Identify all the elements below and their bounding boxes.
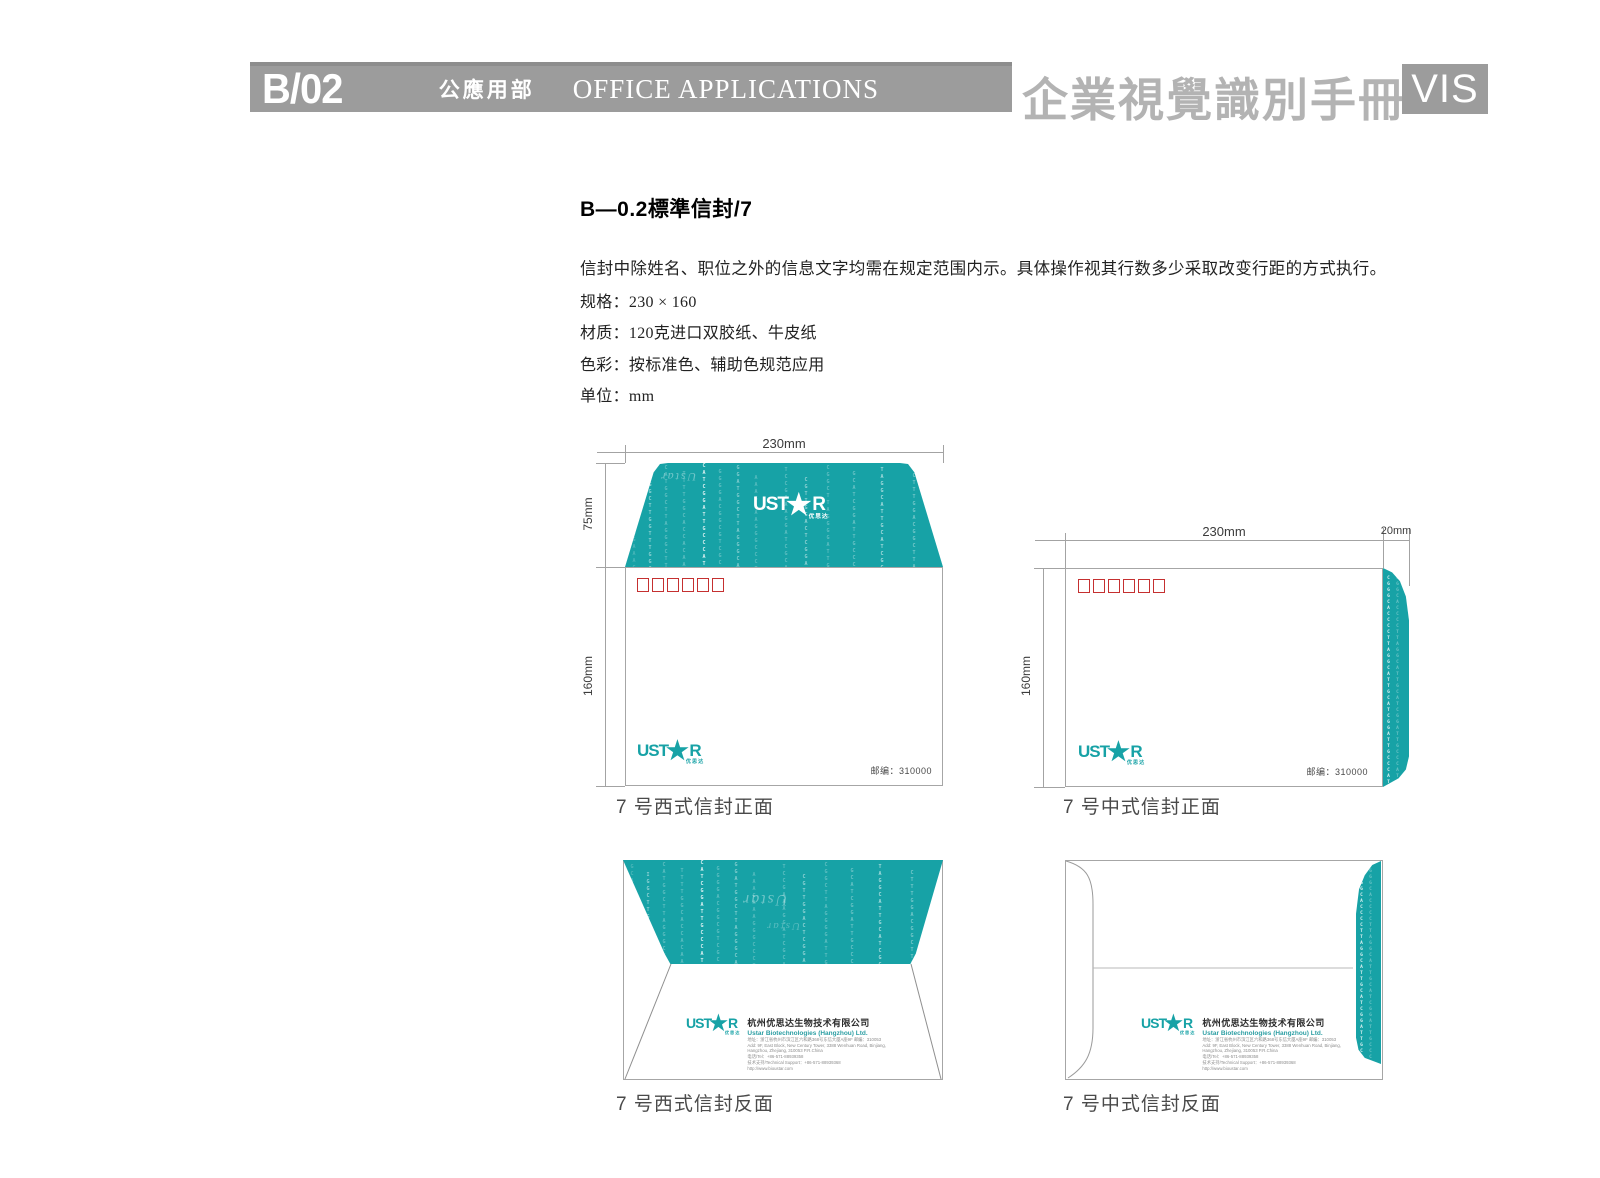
watermark: Ustar	[659, 469, 696, 484]
dimension-line	[1035, 540, 1409, 541]
dim-height-label: 160mm	[581, 646, 595, 706]
postcode-boxes	[1078, 579, 1165, 593]
star-icon: ★	[1107, 743, 1129, 761]
envelope-flap: GCACACCAAAGAAAGGGCCCIGGCTTGGTTTGGCAGCGGC…	[625, 463, 943, 567]
ustar-logo: UST ★ R 优思达	[686, 1016, 740, 1035]
postcode-label: 邮编：310000	[1306, 765, 1368, 778]
envelope-side-flap-back: CGGGCACCCCTTAGGCATTGCATCGGATTGCCCATGCCAT…	[1356, 861, 1381, 1064]
section-code: B/02	[262, 65, 342, 113]
dimension-tick	[596, 463, 625, 464]
company-block: UST ★ R 优思达 杭州优思达生物技术有限公司 Ustar Biotechn…	[686, 1016, 886, 1071]
star-icon: ★	[786, 495, 811, 516]
dimension-tick	[596, 786, 625, 787]
spec-color: 色彩：按标准色、辅助色规范应用	[580, 351, 825, 375]
page-title: B—0.2標準信封/7	[580, 193, 752, 223]
spec-size: 规格：230 × 160	[580, 288, 697, 312]
dimension-tick	[625, 445, 626, 463]
dim-width-label: 230mm	[754, 436, 814, 451]
caption-west-back: 7 号西式信封反面	[616, 1089, 774, 1116]
company-name-en: Ustar Biotechnologies (Hangzhou) Ltd.	[747, 1030, 886, 1037]
ustar-logo: UST ★ R 优思达	[637, 742, 704, 765]
envelope-front-west: UST ★ R 优思达 邮编：310000	[625, 567, 943, 786]
ustar-logo: UST ★ R 优思达	[1141, 1016, 1195, 1035]
dimension-tick	[1034, 787, 1065, 788]
company-name-cn: 杭州优思达生物技术有限公司	[747, 1016, 886, 1029]
section-title-en: OFFICE APPLICATIONS	[573, 74, 879, 105]
company-name-cn: 杭州优思达生物技术有限公司	[1202, 1016, 1341, 1029]
dimension-tick	[943, 445, 944, 463]
dim-height-label: 160mm	[1019, 646, 1033, 706]
ustar-logo: UST ★ R 优思达	[1078, 743, 1145, 766]
vis-badge: VIS	[1402, 64, 1488, 114]
envelope-side-flap: CGGGCACCCCTTAGGCATTGCATCGGATTGCCCATGCCAT…	[1383, 568, 1409, 787]
description-text: 信封中除姓名、职位之外的信息文字均需在规定范围内示。具体操作视其行数多少采取改变…	[580, 255, 1386, 279]
spec-material: 材质：120克进口双胶纸、牛皮纸	[580, 319, 817, 343]
postcode-boxes	[637, 578, 724, 592]
company-name-en: Ustar Biotechnologies (Hangzhou) Ltd.	[1202, 1030, 1341, 1037]
dimension-tick	[1034, 568, 1065, 569]
company-block: UST ★ R 优思达 杭州优思达生物技术有限公司 Ustar Biotechn…	[1141, 1016, 1341, 1071]
company-info: 杭州优思达生物技术有限公司 Ustar Biotechnologies (Han…	[747, 1016, 886, 1071]
ustar-logo: UST ★ R 优思达	[753, 495, 829, 521]
dimension-line	[605, 463, 606, 786]
dim-side-label: 20mm	[1376, 525, 1416, 537]
manual-title: 企業視覺識別手冊	[1022, 64, 1406, 130]
section-title-cn: 公應用部	[439, 74, 535, 104]
envelope-front-china: UST ★ R 优思达 邮编：310000	[1065, 568, 1383, 787]
star-icon: ★	[666, 742, 688, 760]
spec-unit: 单位：mm	[580, 382, 654, 406]
caption-west-front: 7 号西式信封正面	[616, 792, 774, 819]
extension-line	[1065, 547, 1066, 568]
dna-pattern: CGGGCACCCCTTAGGCATTGCATCGGATTGCCCATGCCAT…	[1356, 861, 1381, 1064]
postcode-label: 邮编：310000	[870, 764, 932, 777]
dimension-line	[597, 452, 943, 453]
dna-pattern: CGGGCACCCCTTAGGCATTGCATCGGATTGCCCATGCCAT…	[1383, 568, 1409, 787]
header-bar: B/02 公應用部 OFFICE APPLICATIONS	[250, 62, 1012, 112]
dimension-line	[1043, 568, 1044, 787]
dimension-tick	[596, 567, 625, 568]
company-info: 杭州优思达生物技术有限公司 Ustar Biotechnologies (Han…	[1202, 1016, 1341, 1071]
dimension-tick	[1065, 533, 1066, 547]
dim-flap-label: 75mm	[581, 484, 595, 544]
dim-width-label: 230mm	[1194, 524, 1254, 539]
vi-manual-page: B/02 公應用部 OFFICE APPLICATIONS 企業視覺識別手冊 V…	[0, 0, 1600, 1178]
caption-china-back: 7 号中式信封反面	[1063, 1089, 1221, 1116]
caption-china-front: 7 号中式信封正面	[1063, 792, 1221, 819]
